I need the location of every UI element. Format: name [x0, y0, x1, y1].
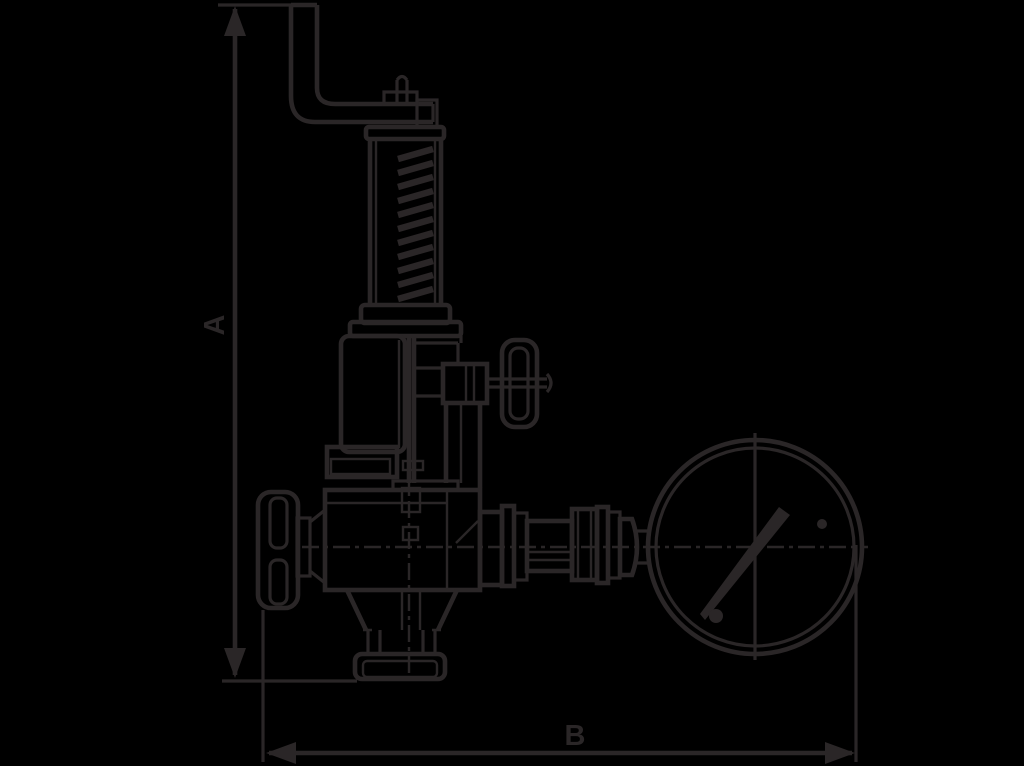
- gauge-dial-dot: [817, 519, 827, 529]
- main-handwheel: [258, 492, 298, 608]
- bonnet: [327, 336, 461, 483]
- center-lines: [302, 470, 868, 678]
- spring-coils: [398, 149, 433, 299]
- arrowhead-down-icon: [224, 648, 246, 678]
- valve-body: [297, 481, 480, 590]
- arrowhead-up-icon: [224, 6, 246, 36]
- arrowhead-left-icon: [266, 742, 296, 764]
- arrowhead-right-icon: [825, 742, 855, 764]
- gauge-needle: [700, 507, 790, 620]
- dimension-label-A: A: [199, 314, 231, 335]
- housing-cap: [366, 127, 444, 139]
- outlet-flange: [355, 654, 445, 679]
- union-nut: [502, 506, 514, 586]
- side-valve: [443, 340, 551, 488]
- down-pipe: [446, 403, 480, 488]
- dimension-line-A: A: [199, 5, 357, 681]
- outlet-neck: [368, 630, 435, 654]
- stem-pin: [397, 77, 407, 103]
- spring-housing: [350, 127, 461, 336]
- outlet-flange-assembly: [347, 590, 457, 679]
- union-nut-2: [597, 507, 608, 583]
- technical-drawing: A B: [0, 0, 1024, 766]
- gauge-needle-counterweight: [709, 609, 723, 623]
- easing-lever: [291, 5, 437, 127]
- side-handwheel: [502, 340, 537, 427]
- dimension-label-B: B: [565, 720, 586, 752]
- drawing-canvas: A B: [0, 0, 1024, 766]
